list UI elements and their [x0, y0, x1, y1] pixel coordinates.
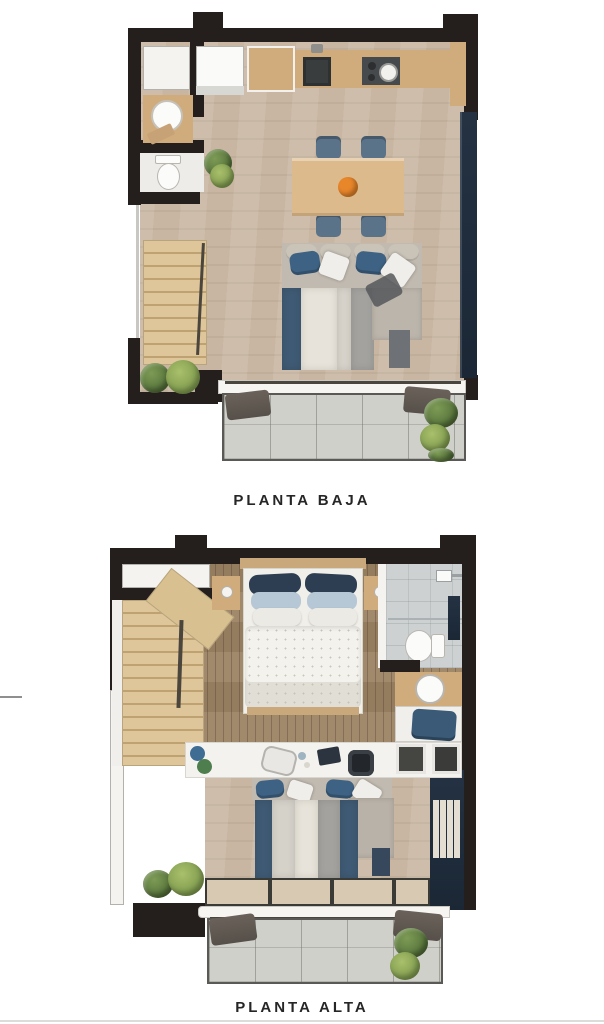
- left-edge-mark: [0, 696, 22, 698]
- desk-cup: [304, 762, 310, 768]
- vanity-basin: [415, 674, 445, 704]
- bed-footboard: [247, 707, 359, 715]
- wall2-bottom-left-block: [133, 903, 205, 937]
- mat-navy: [372, 848, 390, 876]
- desk-tray: [396, 744, 426, 774]
- shower-head-icon: [436, 570, 452, 582]
- rug2-stripe-cream: [295, 800, 318, 878]
- rug2-stripe-navy: [255, 800, 272, 878]
- desk-bottle: [298, 752, 306, 760]
- wall2-protrusion: [175, 535, 207, 564]
- bottom-edge-line: [0, 1020, 604, 1022]
- lamp-icon: [221, 586, 233, 598]
- bathroom-partition: [378, 564, 386, 668]
- desk-tray: [432, 744, 460, 774]
- plant-pot-upper: [168, 862, 204, 896]
- pillow-blue: [325, 779, 354, 799]
- shelf-slat: [433, 800, 439, 858]
- desk-plant: [197, 759, 212, 774]
- window-mullion: [268, 878, 272, 906]
- pillow-blue: [255, 779, 285, 800]
- rug2-stripe-light: [272, 800, 295, 878]
- wall2-right: [462, 548, 476, 910]
- bath-towel: [448, 596, 460, 640]
- toilet-upper-tank: [431, 634, 445, 658]
- window-mullion: [330, 878, 334, 906]
- rug2-stripe-navy: [340, 800, 358, 878]
- wall2-bath-door: [380, 660, 420, 672]
- toilet-upper-icon: [405, 630, 433, 662]
- desk-chair-black: [348, 750, 374, 776]
- balcony2-plant: [390, 952, 420, 980]
- shelf-slat: [454, 800, 460, 858]
- planta-alta-label: PLANTA ALTA: [0, 999, 604, 1016]
- window-band: [205, 878, 430, 906]
- bed-pillow-white: [253, 608, 301, 626]
- floorplan-sheet: PLANTA BAJA: [0, 0, 604, 1024]
- rug2-stripe-gray: [318, 800, 340, 878]
- shower-arm-icon: [452, 574, 462, 577]
- shelf-slat: [440, 800, 446, 858]
- bed-pillow-white: [309, 608, 357, 626]
- bench-cushion: [411, 709, 457, 742]
- planta-alta-plan: [0, 0, 604, 1024]
- shelf-slat: [447, 800, 453, 858]
- bed-duvet: [245, 626, 361, 708]
- window-mullion: [392, 878, 396, 906]
